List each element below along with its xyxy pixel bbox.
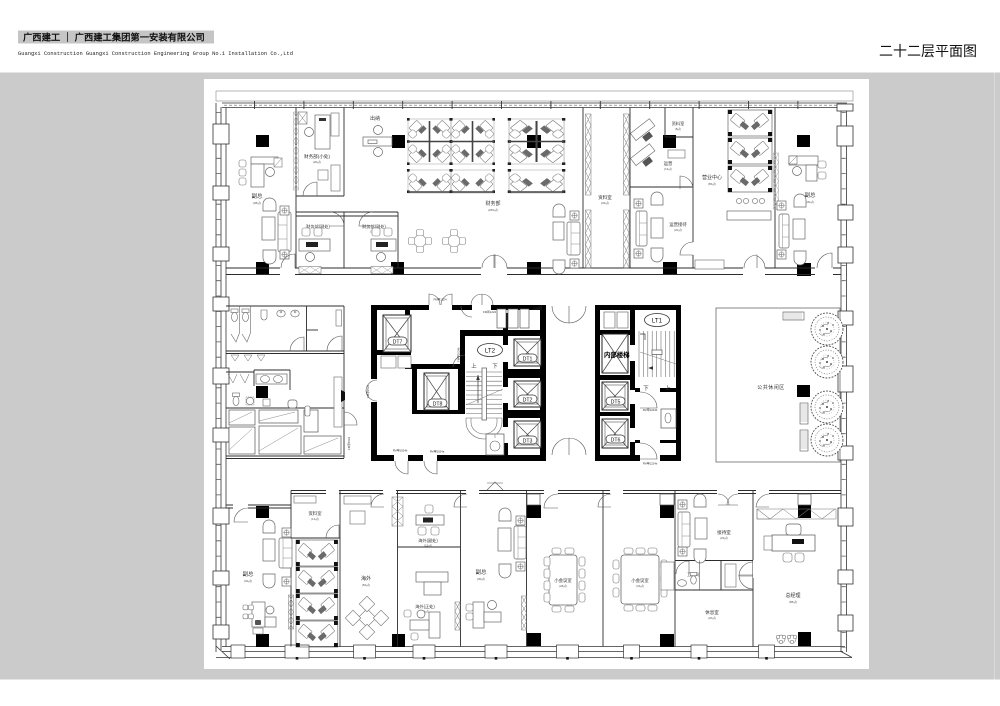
svg-text:(52㎡): (52㎡) bbox=[362, 582, 370, 587]
svg-text:DT8: DT8 bbox=[433, 402, 443, 408]
svg-text:(65㎡): (65㎡) bbox=[708, 181, 716, 186]
svg-text:(30㎡): (30㎡) bbox=[806, 199, 814, 204]
svg-text:运营接待: 运营接待 bbox=[669, 221, 687, 228]
svg-text:(14㎡): (14㎡) bbox=[311, 517, 319, 521]
svg-text:FM甲1524: FM甲1524 bbox=[433, 298, 447, 302]
svg-text:LT1: LT1 bbox=[652, 318, 663, 325]
svg-text:(16㎡): (16㎡) bbox=[664, 167, 672, 171]
svg-text:副总: 副总 bbox=[242, 570, 254, 578]
svg-text:资料室: 资料室 bbox=[598, 194, 612, 201]
svg-text:(32㎡): (32㎡) bbox=[244, 578, 252, 583]
svg-text:(30㎡): (30㎡) bbox=[477, 576, 485, 581]
svg-text:Guangxi Construction Guan: Guangxi Construction Guangxi Constructio… bbox=[18, 51, 293, 57]
svg-text:DT2: DT2 bbox=[523, 398, 533, 404]
svg-text:(15㎡): (15㎡) bbox=[424, 544, 432, 548]
svg-text:(260㎡): (260㎡) bbox=[488, 207, 498, 212]
svg-text:内部楼梯: 内部楼梯 bbox=[604, 350, 630, 359]
svg-text:资料室: 资料室 bbox=[672, 120, 685, 127]
svg-text:(26㎡): (26㎡) bbox=[720, 536, 728, 540]
svg-text:副总: 副总 bbox=[251, 192, 263, 200]
svg-text:广西建工 ｜ 广西建工集团第一安装有限公司: 广西建工 ｜ 广西建工集团第一安装有限公司 bbox=[23, 32, 205, 43]
svg-text:(28㎡): (28㎡) bbox=[253, 200, 261, 205]
svg-text:FM甲1024b: FM甲1024b bbox=[393, 449, 408, 453]
svg-text:海外: 海外 bbox=[361, 575, 371, 582]
svg-text:FM甲1524: FM甲1524 bbox=[366, 384, 370, 398]
svg-text:FM甲1224b: FM甲1224b bbox=[643, 408, 658, 412]
svg-text:FM甲1524: FM甲1524 bbox=[347, 436, 351, 450]
svg-text:小会议室: 小会议室 bbox=[631, 577, 649, 584]
svg-text:公共休闲区: 公共休闲区 bbox=[757, 384, 785, 391]
svg-text:休息室: 休息室 bbox=[705, 609, 719, 616]
svg-text:小会议室: 小会议室 bbox=[554, 577, 572, 584]
svg-text:(20㎡): (20㎡) bbox=[313, 159, 321, 164]
svg-text:FM甲1224b: FM甲1224b bbox=[643, 462, 658, 466]
svg-text:DT3: DT3 bbox=[523, 439, 533, 445]
svg-text:LT2: LT2 bbox=[485, 348, 496, 355]
svg-text:(8㎡): (8㎡) bbox=[675, 127, 681, 131]
svg-text:资料室: 资料室 bbox=[308, 510, 322, 517]
svg-text:营业中心: 营业中心 bbox=[702, 174, 722, 181]
svg-text:副总: 副总 bbox=[804, 191, 816, 199]
svg-text:DT6: DT6 bbox=[611, 438, 621, 444]
svg-text:(20㎡): (20㎡) bbox=[674, 228, 682, 232]
svg-text:接待室: 接待室 bbox=[717, 529, 731, 536]
svg-text:上: 上 bbox=[471, 362, 477, 370]
svg-text:FM丙1224: FM丙1224 bbox=[483, 310, 497, 314]
svg-text:(32㎡): (32㎡) bbox=[636, 584, 644, 588]
svg-text:财务部(小处): 财务部(小处) bbox=[304, 153, 330, 160]
svg-text:二十二层平面图: 二十二层平面图 bbox=[879, 43, 977, 59]
svg-text:出纳: 出纳 bbox=[370, 115, 380, 122]
svg-text:(20㎡): (20㎡) bbox=[708, 616, 716, 620]
svg-text:DT1: DT1 bbox=[523, 357, 533, 363]
svg-text:上: 上 bbox=[665, 384, 671, 392]
svg-text:下: 下 bbox=[643, 385, 649, 392]
svg-text:FM甲1024a: FM甲1024a bbox=[430, 450, 445, 454]
svg-text:运营: 运营 bbox=[664, 160, 673, 167]
svg-text:副总: 副总 bbox=[475, 568, 487, 576]
svg-text:(28㎡): (28㎡) bbox=[559, 584, 567, 588]
svg-text:下: 下 bbox=[492, 363, 498, 370]
svg-text:DT5: DT5 bbox=[611, 400, 621, 406]
svg-text:DT7: DT7 bbox=[393, 340, 403, 346]
svg-text:FM甲1024b: FM甲1024b bbox=[457, 347, 461, 362]
svg-text:(58㎡): (58㎡) bbox=[789, 599, 797, 604]
svg-text:财务部: 财务部 bbox=[485, 200, 500, 207]
svg-text:(32㎡): (32㎡) bbox=[601, 200, 609, 205]
svg-text:总经理: 总经理 bbox=[785, 592, 800, 599]
